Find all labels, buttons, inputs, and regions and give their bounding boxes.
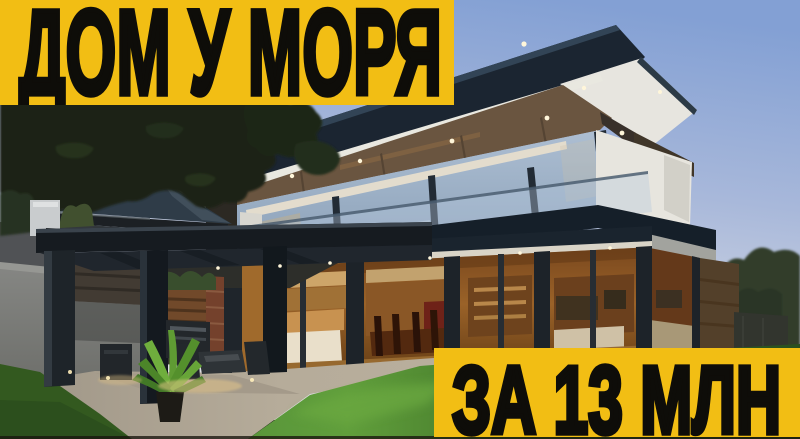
svg-text:ЗА 13 МЛН: ЗА 13 МЛН <box>452 347 781 439</box>
svg-text:ДОМ У МОРЯ: ДОМ У МОРЯ <box>19 0 442 120</box>
